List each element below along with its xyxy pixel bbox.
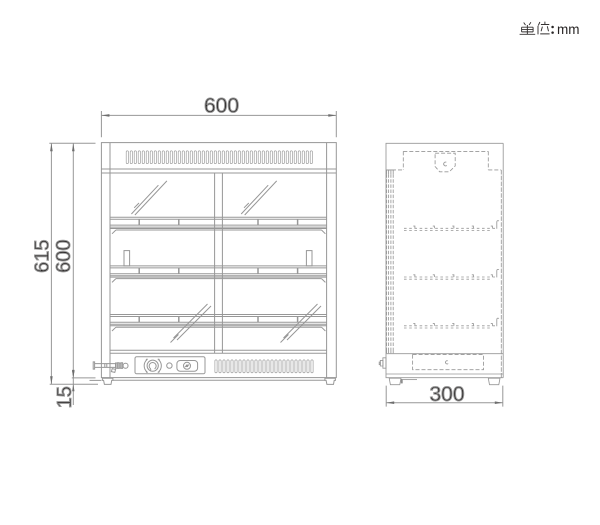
svg-text:mm: mm bbox=[557, 22, 580, 37]
svg-text:600: 600 bbox=[53, 240, 75, 273]
svg-text:300: 300 bbox=[429, 383, 464, 406]
svg-text:15: 15 bbox=[54, 386, 76, 408]
svg-text:615: 615 bbox=[31, 240, 53, 273]
svg-text:600: 600 bbox=[204, 95, 239, 118]
